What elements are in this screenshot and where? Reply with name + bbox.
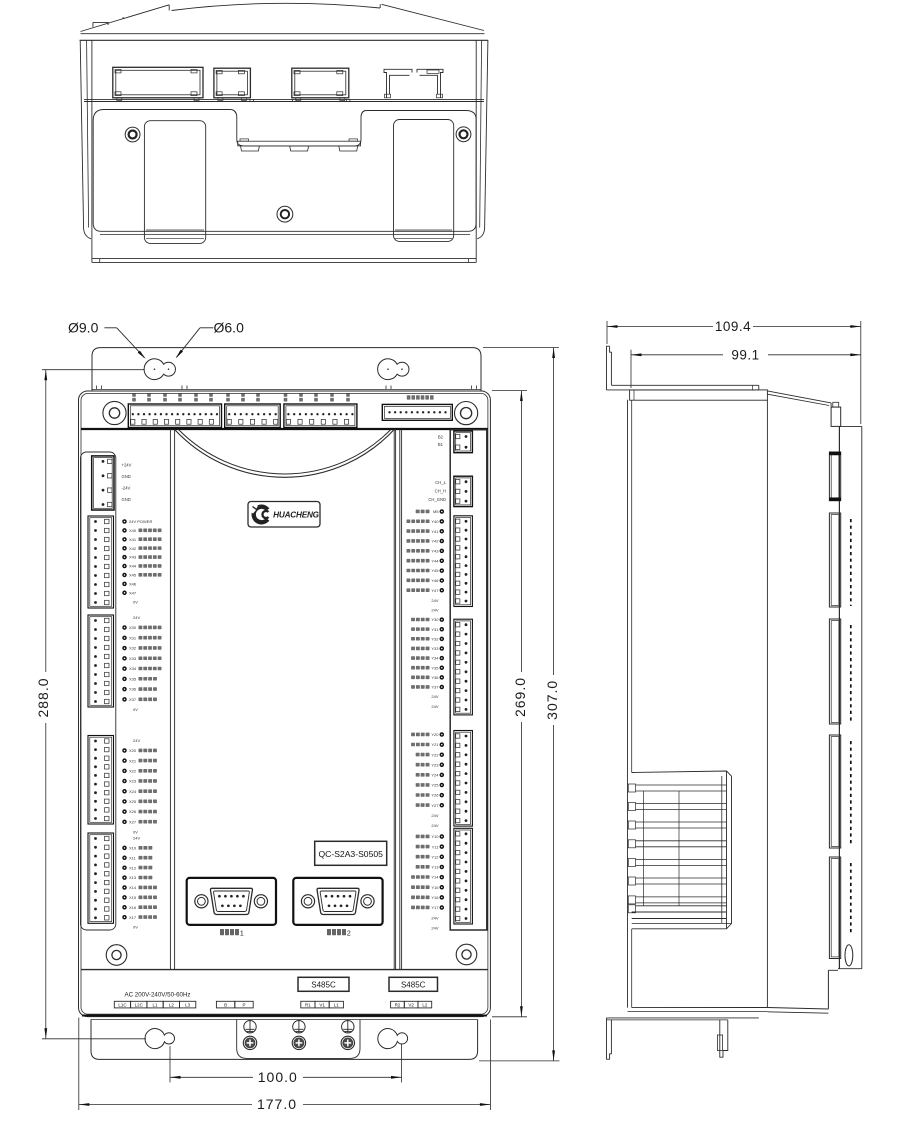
svg-text:X16: X16 xyxy=(129,905,137,910)
svg-text:X15: X15 xyxy=(129,895,137,900)
svg-text:CH_GND: CH_GND xyxy=(428,497,446,502)
svg-text:X17: X17 xyxy=(129,915,137,920)
svg-text:Y47: Y47 xyxy=(431,588,439,593)
svg-text:307.0: 307.0 xyxy=(544,680,560,720)
svg-text:Y13: Y13 xyxy=(431,865,439,870)
svg-text:R1: R1 xyxy=(305,1003,311,1008)
svg-text:100.0: 100.0 xyxy=(258,1069,298,1085)
svg-text:Y23: Y23 xyxy=(431,762,439,767)
svg-text:Y33: Y33 xyxy=(431,646,439,651)
svg-text:Y34: Y34 xyxy=(431,656,439,661)
svg-text:24V POWER: 24V POWER xyxy=(129,519,152,524)
svg-text:V1: V1 xyxy=(319,1003,325,1008)
svg-text:24V: 24V xyxy=(431,823,438,828)
svg-text:Y12: Y12 xyxy=(431,854,439,859)
svg-text:S485C: S485C xyxy=(311,980,336,989)
svg-text:Y24: Y24 xyxy=(431,773,439,778)
svg-text:CH_H: CH_H xyxy=(435,488,446,493)
svg-text:Y22: Y22 xyxy=(431,752,439,757)
svg-text:X33: X33 xyxy=(129,656,137,661)
svg-text:24V: 24V xyxy=(133,836,140,841)
svg-text:24V: 24V xyxy=(133,615,140,620)
svg-text:Ø9.0: Ø9.0 xyxy=(68,320,99,336)
svg-text:+24V: +24V xyxy=(122,462,132,467)
svg-text:X40: X40 xyxy=(129,528,137,533)
svg-text:L1: L1 xyxy=(153,1003,159,1008)
svg-text:R2: R2 xyxy=(395,1003,401,1008)
svg-text:X42: X42 xyxy=(129,546,137,551)
svg-text:Y14: Y14 xyxy=(431,875,439,880)
svg-text:2: 2 xyxy=(347,930,351,937)
svg-text:0V: 0V xyxy=(133,707,138,712)
svg-text:24V: 24V xyxy=(431,925,438,930)
svg-text:Y25: Y25 xyxy=(431,783,439,788)
svg-text:X11: X11 xyxy=(129,855,137,860)
svg-text:0V: 0V xyxy=(133,925,138,930)
svg-text:0V: 0V xyxy=(133,599,138,604)
svg-text:X31: X31 xyxy=(129,635,137,640)
svg-text:GND: GND xyxy=(122,474,131,479)
svg-text:Y26: Y26 xyxy=(431,793,439,798)
svg-text:X25: X25 xyxy=(129,799,137,804)
svg-text:Y11: Y11 xyxy=(432,844,440,849)
svg-text:0V: 0V xyxy=(133,830,138,835)
svg-text:X46: X46 xyxy=(129,581,137,586)
svg-text:M5: M5 xyxy=(433,509,439,514)
svg-text:Y30: Y30 xyxy=(431,617,439,622)
svg-text:X23: X23 xyxy=(129,779,137,784)
svg-text:X32: X32 xyxy=(129,646,137,651)
svg-text:24V: 24V xyxy=(431,915,438,920)
svg-text:X34: X34 xyxy=(129,666,137,671)
svg-text:Y10: Y10 xyxy=(431,834,439,839)
svg-text:24V: 24V xyxy=(431,813,438,818)
svg-text:X45: X45 xyxy=(129,573,137,578)
svg-text:V2: V2 xyxy=(408,1003,414,1008)
svg-text:288.0: 288.0 xyxy=(35,677,51,717)
svg-text:X35: X35 xyxy=(129,676,137,681)
svg-text:X27: X27 xyxy=(129,819,137,824)
svg-text:B2: B2 xyxy=(438,435,444,440)
svg-text:24V: 24V xyxy=(431,694,438,699)
svg-text:24V: 24V xyxy=(431,608,438,613)
svg-text:L1: L1 xyxy=(334,1003,340,1008)
svg-text:24V: 24V xyxy=(431,704,438,709)
svg-text:X44: X44 xyxy=(129,564,137,569)
svg-text:Y35: Y35 xyxy=(431,665,439,670)
svg-text:L3: L3 xyxy=(185,1003,191,1008)
svg-text:Y27: Y27 xyxy=(431,803,439,808)
svg-text:X14: X14 xyxy=(129,885,137,890)
svg-text:QC-S2A3-S0505: QC-S2A3-S0505 xyxy=(318,849,383,859)
svg-text:CH_L: CH_L xyxy=(435,480,446,485)
svg-text:1: 1 xyxy=(240,930,244,937)
svg-text:Y15: Y15 xyxy=(431,885,439,890)
svg-text:B1: B1 xyxy=(438,442,444,447)
svg-text:-24V: -24V xyxy=(122,486,131,491)
svg-text:X21: X21 xyxy=(129,758,137,763)
svg-text:X22: X22 xyxy=(129,768,137,773)
svg-text:X26: X26 xyxy=(129,809,137,814)
svg-text:Y45: Y45 xyxy=(431,568,439,573)
svg-text:X13: X13 xyxy=(129,875,137,880)
svg-text:Y16: Y16 xyxy=(431,895,439,900)
svg-text:Ø6.0: Ø6.0 xyxy=(214,320,245,336)
svg-text:S485C: S485C xyxy=(401,980,426,989)
svg-text:109.4: 109.4 xyxy=(715,319,751,334)
svg-text:X20: X20 xyxy=(129,748,137,753)
svg-text:X30: X30 xyxy=(129,625,137,630)
svg-text:X37: X37 xyxy=(129,697,137,702)
svg-text:99.1: 99.1 xyxy=(731,347,759,362)
svg-text:L2: L2 xyxy=(422,1003,428,1008)
svg-text:Y40: Y40 xyxy=(431,519,439,524)
svg-text:X47: X47 xyxy=(129,590,137,595)
svg-text:L2C: L2C xyxy=(135,1003,144,1008)
svg-text:Y42: Y42 xyxy=(431,539,439,544)
svg-text:Y36: Y36 xyxy=(431,675,439,680)
svg-text:Y31: Y31 xyxy=(431,627,439,632)
svg-text:GND: GND xyxy=(122,497,131,502)
svg-text:X36: X36 xyxy=(129,687,137,692)
svg-text:AC 200V-240V/50-60Hz: AC 200V-240V/50-60Hz xyxy=(124,991,190,998)
svg-text:24V: 24V xyxy=(133,738,140,743)
svg-text:Y44: Y44 xyxy=(431,558,439,563)
svg-text:177.0: 177.0 xyxy=(257,1096,297,1112)
svg-text:Y43: Y43 xyxy=(431,549,439,554)
svg-text:X41: X41 xyxy=(129,537,137,542)
svg-text:X12: X12 xyxy=(129,865,137,870)
svg-text:X24: X24 xyxy=(129,789,137,794)
svg-text:Y46: Y46 xyxy=(431,578,439,583)
svg-text:Y32: Y32 xyxy=(431,636,439,641)
svg-text:P: P xyxy=(242,1003,245,1008)
svg-text:Y20: Y20 xyxy=(431,732,439,737)
svg-text:Y17: Y17 xyxy=(431,905,439,910)
svg-text:X43: X43 xyxy=(129,555,137,560)
svg-text:24V: 24V xyxy=(431,598,438,603)
svg-text:Y21: Y21 xyxy=(431,742,439,747)
svg-text:L1C: L1C xyxy=(118,1003,127,1008)
svg-text:Y37: Y37 xyxy=(431,685,439,690)
svg-text:Y41: Y41 xyxy=(431,529,439,534)
svg-text:269.0: 269.0 xyxy=(512,677,528,717)
svg-text:L2: L2 xyxy=(169,1003,175,1008)
svg-text:HUACHENG: HUACHENG xyxy=(273,511,320,520)
svg-text:X10: X10 xyxy=(129,846,137,851)
svg-text:B: B xyxy=(224,1003,227,1008)
